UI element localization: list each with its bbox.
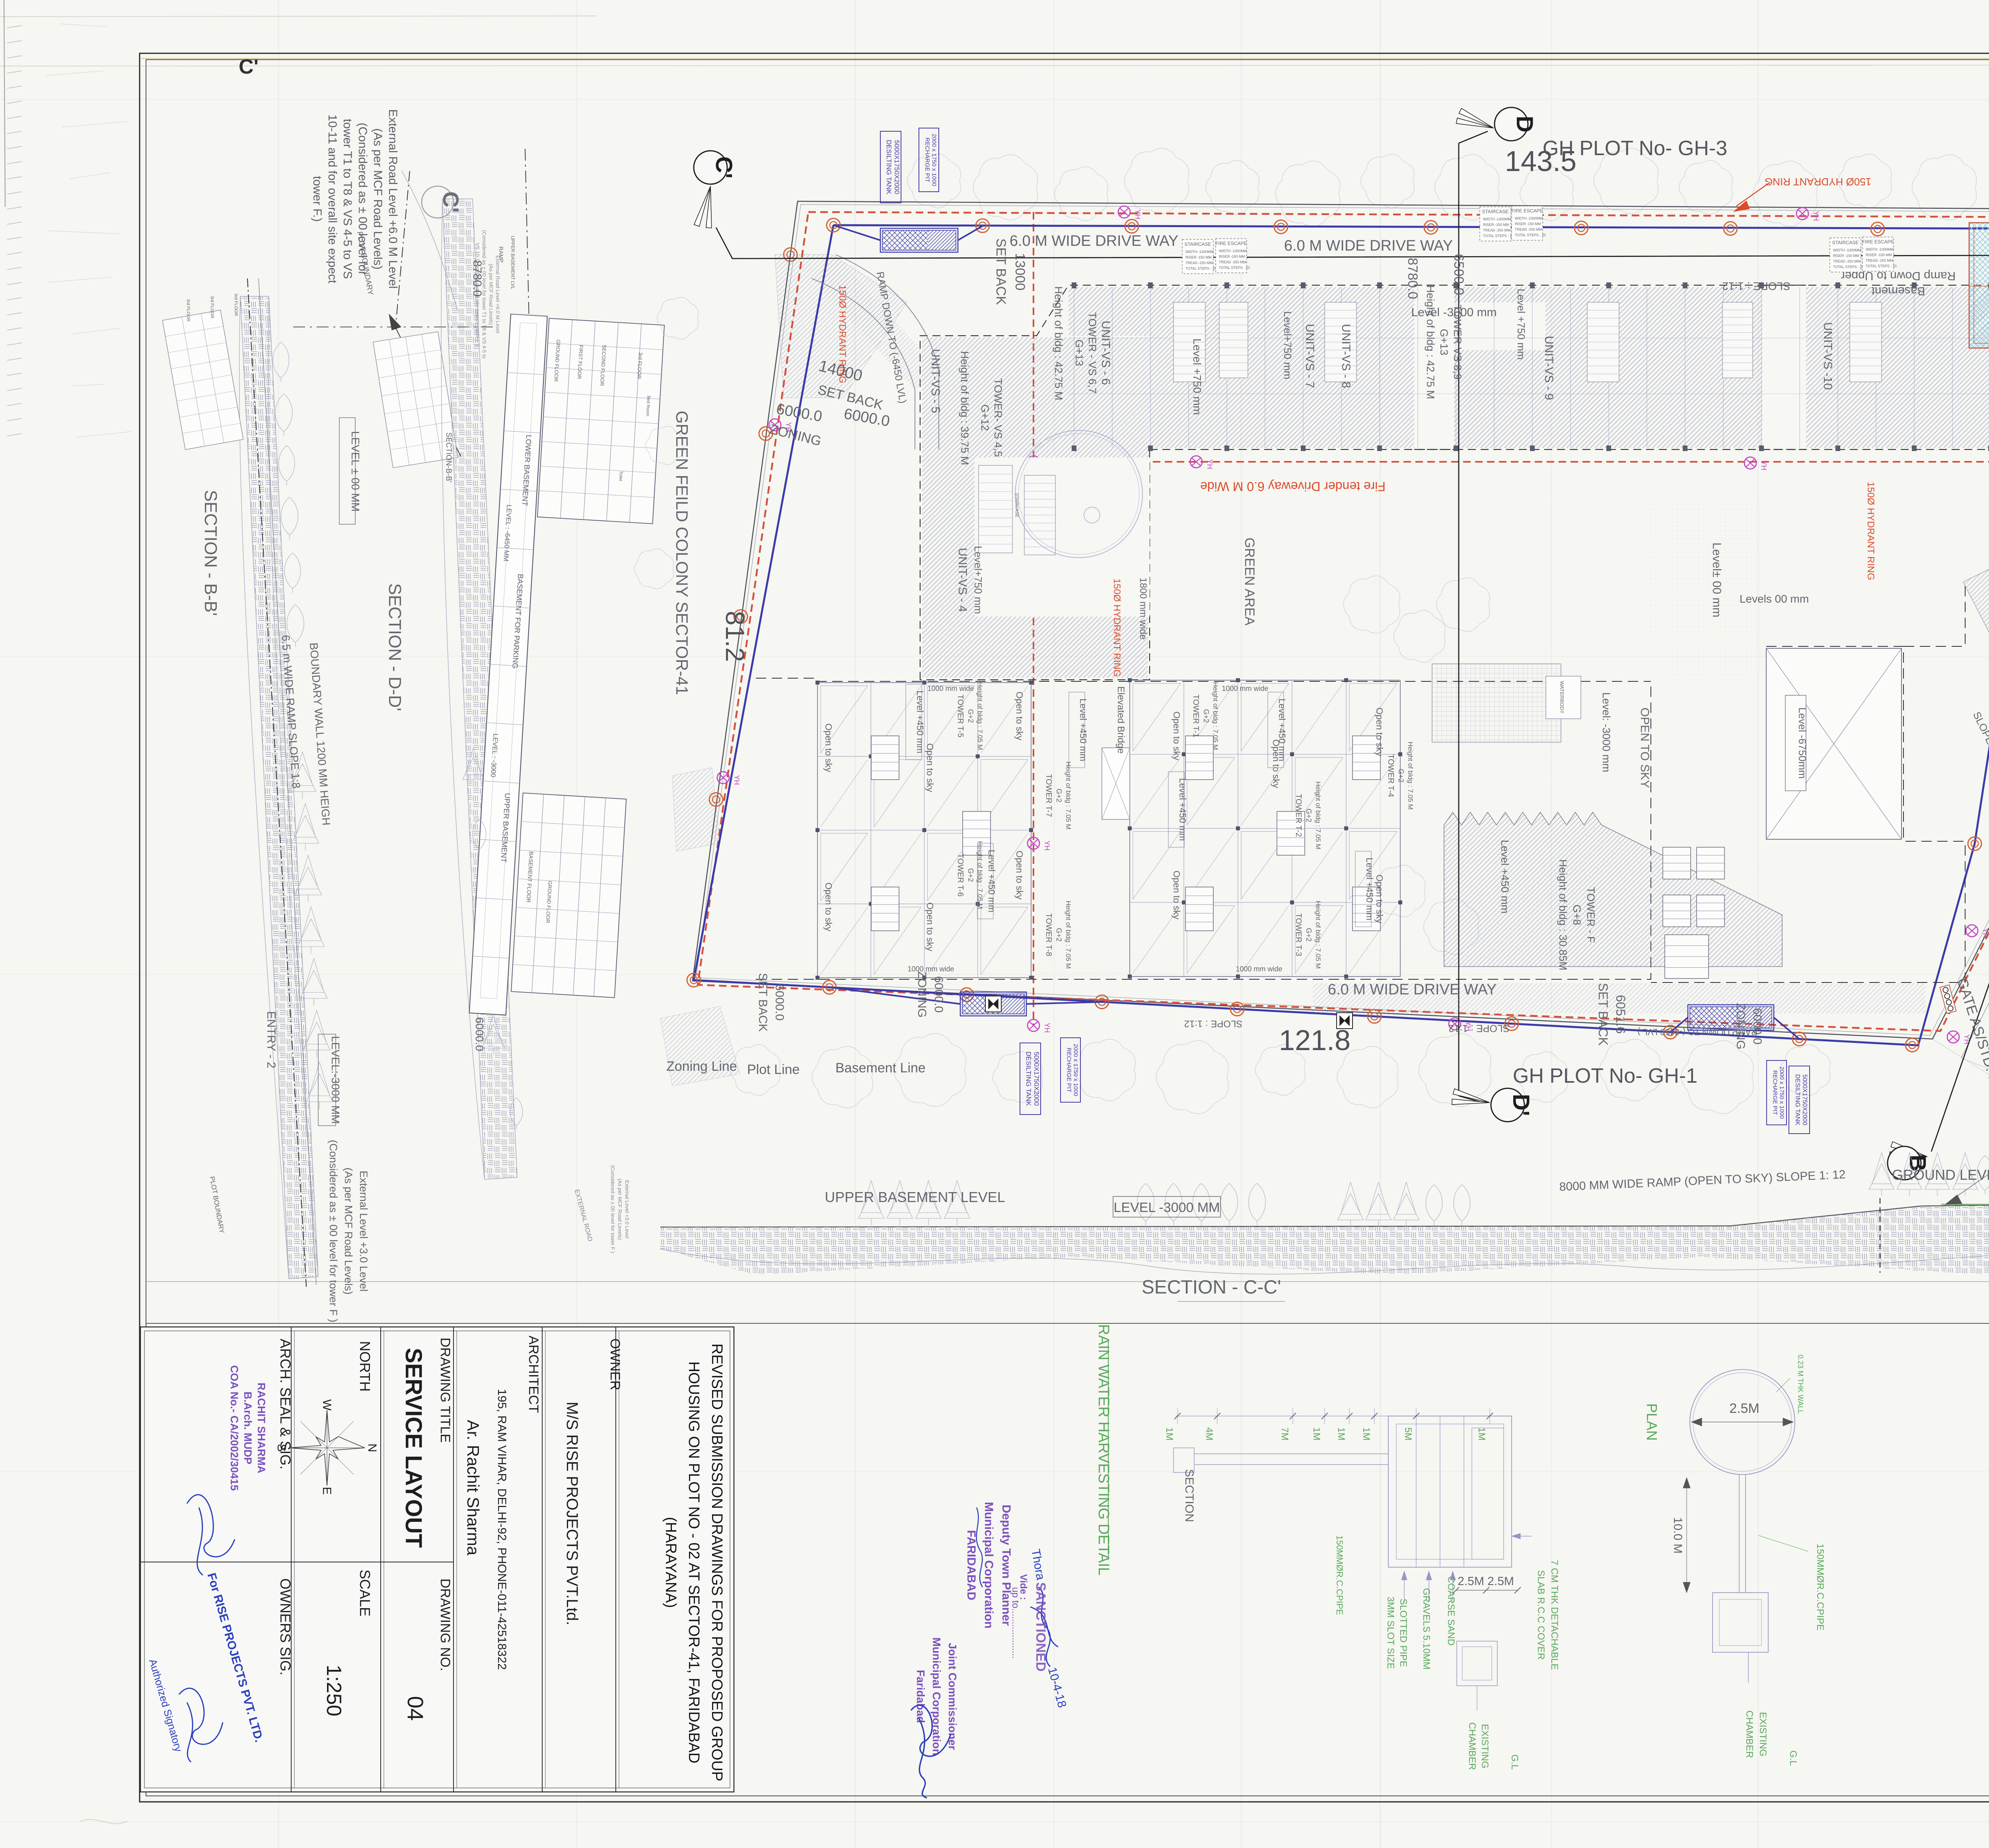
svg-text:Level +450 mm: Level +450 mm <box>1177 778 1188 841</box>
svg-text:RECHARGE PIT: RECHARGE PIT <box>1771 1070 1778 1115</box>
svg-text:2000 x 1750 x 1000: 2000 x 1750 x 1000 <box>931 134 938 186</box>
svg-text:SLOTTED PIPE: SLOTTED PIPE <box>1398 1599 1409 1667</box>
svg-text:G+2: G+2 <box>1305 928 1313 942</box>
svg-text:TOWER T-1: TOWER T-1 <box>1191 694 1200 737</box>
svg-text:SLAB R.C.C COVER: SLAB R.C.C COVER <box>1536 1570 1546 1659</box>
svg-text:Basement: Basement <box>1871 284 1925 298</box>
svg-text:NORTH: NORTH <box>357 1341 373 1391</box>
svg-text:EXISTING: EXISTING <box>1479 1724 1490 1768</box>
svg-text:TOWER T-7: TOWER T-7 <box>1044 774 1053 817</box>
svg-text:FARIDABAD: FARIDABAD <box>965 1530 978 1601</box>
svg-text:SANCTIONED: SANCTIONED <box>1033 1582 1048 1672</box>
svg-text:G+12: G+12 <box>979 405 991 431</box>
svg-text:G+2: G+2 <box>1397 769 1405 783</box>
svg-text:DESILTING TANK: DESILTING TANK <box>885 140 893 195</box>
svg-text:Open to sky: Open to sky <box>1014 851 1025 900</box>
svg-text:RISER -150 MM: RISER -150 MM <box>1515 222 1541 226</box>
svg-text:WATERBODY: WATERBODY <box>1559 681 1565 714</box>
svg-text:TOTAL STEPS - 20: TOTAL STEPS - 20 <box>1219 266 1250 270</box>
svg-text:RISER -150 MM: RISER -150 MM <box>1185 255 1212 259</box>
svg-text:3MM SLOT SIZE: 3MM SLOT SIZE <box>1385 1597 1396 1669</box>
svg-text:UNIT-VS - 5: UNIT-VS - 5 <box>929 349 942 413</box>
svg-text:Level -6750mm: Level -6750mm <box>1796 707 1808 778</box>
svg-text:External Road Level +6.0 M Lev: External Road Level +6.0 M Level <box>386 109 399 288</box>
svg-text:B.Arch. MUDP: B.Arch. MUDP <box>242 1391 254 1464</box>
svg-text:6000.0: 6000.0 <box>932 976 945 1013</box>
svg-text:ENTRY - 2: ENTRY - 2 <box>265 1011 278 1068</box>
svg-text:TOTAL STEPS - 20: TOTAL STEPS - 20 <box>1866 264 1897 268</box>
svg-text:YH: YH <box>1134 209 1142 219</box>
svg-text:TOTAL STEPS - 20: TOTAL STEPS - 20 <box>1515 233 1546 237</box>
svg-text:STAIRCASE: STAIRCASE <box>1014 493 1019 517</box>
svg-text:YH: YH <box>733 775 741 785</box>
svg-text:Levels 00 mm: Levels 00 mm <box>1740 593 1809 605</box>
svg-text:13000: 13000 <box>1012 253 1028 291</box>
svg-text:E: E <box>320 1487 333 1495</box>
svg-text:TOWER T-6: TOWER T-6 <box>956 854 965 897</box>
svg-text:1000 mm wide: 1000 mm wide <box>927 685 974 693</box>
svg-text:TOWER T-5: TOWER T-5 <box>956 694 965 737</box>
svg-text:SECTION - D-D': SECTION - D-D' <box>385 583 405 711</box>
svg-text:GREEN AREA: GREEN AREA <box>1242 537 1257 625</box>
svg-text:Height of bldg : 39.75 M: Height of bldg : 39.75 M <box>959 351 971 465</box>
svg-text:C': C' <box>438 191 463 213</box>
svg-text:TOWER T-3: TOWER T-3 <box>1294 913 1303 956</box>
svg-text:Toilet: Toilet <box>618 471 624 481</box>
svg-text:6000.0: 6000.0 <box>473 1017 486 1051</box>
svg-text:Open to sky: Open to sky <box>1014 692 1025 741</box>
svg-text:Height of bldg : 30.85M: Height of bldg : 30.85M <box>1557 859 1569 970</box>
svg-text:150MMØR.C.CPIPE: 150MMØR.C.CPIPE <box>1335 1535 1345 1615</box>
svg-text:Basement Line: Basement Line <box>835 1060 926 1076</box>
svg-text:Level +450 mm: Level +450 mm <box>1078 698 1088 761</box>
svg-text:GREEN FEILD COLONY SECTOR-41: GREEN FEILD COLONY SECTOR-41 <box>673 411 691 695</box>
svg-text:5000X1750X2000: 5000X1750X2000 <box>893 140 901 194</box>
svg-text:6000.0: 6000.0 <box>773 984 786 1021</box>
svg-text:6500.0: 6500.0 <box>1451 254 1466 295</box>
svg-text:Open to sky: Open to sky <box>823 724 834 772</box>
svg-text:1M: 1M <box>1361 1427 1372 1440</box>
svg-text:STAIRCASE: STAIRCASE <box>1482 209 1508 214</box>
svg-text:2000 x 1750 x 1000: 2000 x 1750 x 1000 <box>1072 1044 1079 1096</box>
svg-text:150Ø HYDRANT RING: 150Ø HYDRANT RING <box>1765 176 1871 188</box>
svg-text:3rd FLOOR: 3rd FLOOR <box>234 294 238 316</box>
svg-text:ARCHITECT: ARCHITECT <box>526 1336 541 1413</box>
svg-text:143.5: 143.5 <box>1505 146 1576 177</box>
svg-text:Elevated Bridge: Elevated Bridge <box>1115 686 1126 753</box>
svg-text:WIDTH -1300MM: WIDTH -1300MM <box>1185 250 1213 254</box>
svg-text:6.0 M WIDE DRIVE WAY: 6.0 M WIDE DRIVE WAY <box>1284 237 1453 254</box>
svg-text:TREAD -250 MM: TREAD -250 MM <box>1866 259 1893 263</box>
svg-text:TREAD -250 MM: TREAD -250 MM <box>1483 228 1510 232</box>
svg-text:REVISED SUBMISSION DRAWINGS FO: REVISED SUBMISSION DRAWINGS FOR PROPOSED… <box>708 1344 725 1782</box>
svg-text:SET BACK: SET BACK <box>993 238 1008 305</box>
svg-text:RISER -150 MM: RISER -150 MM <box>1219 255 1245 259</box>
svg-text:(HARAYANA): (HARAYANA) <box>662 1517 679 1608</box>
svg-text:1M: 1M <box>1476 1427 1487 1440</box>
svg-text:YH: YH <box>1043 1023 1051 1033</box>
svg-text:Ar. Rachit Sharma: Ar. Rachit Sharma <box>464 1420 483 1556</box>
svg-text:0.23 M THK WALL: 0.23 M THK WALL <box>1796 1354 1804 1414</box>
svg-text:RISER -150 MM: RISER -150 MM <box>1866 253 1892 257</box>
svg-text:UPPER BASEMENT LEVEL: UPPER BASEMENT LEVEL <box>825 1189 1005 1205</box>
svg-text:150Ø HYDRANT RING: 150Ø HYDRANT RING <box>1111 578 1122 677</box>
svg-text:5000X1750X2000: 5000X1750X2000 <box>1033 1052 1040 1106</box>
svg-text:G.L: G.L <box>1509 1755 1520 1770</box>
svg-text:WIDTH -1300MM: WIDTH -1300MM <box>1833 248 1861 252</box>
svg-text:N: N <box>366 1443 379 1452</box>
svg-text:2000 x 1750 x 1000: 2000 x 1750 x 1000 <box>1779 1066 1785 1119</box>
svg-text:Zoning Line: Zoning Line <box>666 1059 737 1074</box>
svg-text:SERVICE LAYOUT: SERVICE LAYOUT <box>401 1348 426 1548</box>
svg-text:FIRE ESCAPE: FIRE ESCAPE <box>1215 241 1247 246</box>
svg-text:OPEN TO SKY: OPEN TO SKY <box>1638 708 1651 788</box>
svg-text:OWNER: OWNER <box>607 1338 623 1390</box>
svg-text:UPPER BASEMENT LVL: UPPER BASEMENT LVL <box>510 236 516 290</box>
svg-text:Level +450 mm: Level +450 mm <box>1364 858 1375 920</box>
svg-text:WIDTH -1300MM: WIDTH -1300MM <box>1866 247 1894 251</box>
svg-text:ZONING: ZONING <box>915 971 928 1018</box>
svg-text:RECHARGE PIT: RECHARGE PIT <box>924 138 930 183</box>
svg-text:TOTAL STEPS - 20: TOTAL STEPS - 20 <box>1483 234 1514 238</box>
svg-text:DRAWING NO.: DRAWING NO. <box>438 1579 453 1671</box>
svg-text:Municipal Corporation: Municipal Corporation <box>930 1637 943 1755</box>
svg-text:Height of bldg : 7.05 M: Height of bldg : 7.05 M <box>1065 901 1072 969</box>
svg-text:2.5M 2.5M: 2.5M 2.5M <box>1458 1575 1514 1588</box>
svg-text:tower T1 to T8 & VS 4-5 to VS: tower T1 to T8 & VS 4-5 to VS <box>341 119 354 279</box>
svg-text:TOWER - VS 6,7: TOWER - VS 6,7 <box>1086 312 1098 393</box>
svg-text:DESILTING TANK: DESILTING TANK <box>1794 1074 1801 1126</box>
svg-text:D: D <box>1512 116 1537 132</box>
svg-text:Level: -3000 mm: Level: -3000 mm <box>1600 692 1612 772</box>
svg-text:G+2: G+2 <box>1055 789 1063 803</box>
svg-text:195, RAM VIHAR, DELHI-92, PHON: 195, RAM VIHAR, DELHI-92, PHONE-011-4251… <box>495 1389 508 1670</box>
svg-text:FIRE ESCAPE: FIRE ESCAPE <box>1862 239 1894 245</box>
svg-text:1000 mm wide: 1000 mm wide <box>1222 685 1268 693</box>
svg-text:WIDTH -1300MM: WIDTH -1300MM <box>1219 249 1247 253</box>
svg-text:8780.0: 8780.0 <box>1405 258 1420 299</box>
svg-text:External Level +3.0 Level: External Level +3.0 Level <box>624 1180 630 1238</box>
svg-text:CHAMBER: CHAMBER <box>1744 1710 1755 1758</box>
svg-text:G+2: G+2 <box>1055 928 1063 942</box>
svg-text:121.8: 121.8 <box>1279 1025 1351 1056</box>
svg-text:HOUSING ON PLOT NO - 02 AT SE: HOUSING ON PLOT NO - 02 AT SECTOR-41, FA… <box>685 1362 702 1764</box>
svg-text:Level +450 mm: Level +450 mm <box>1499 840 1511 913</box>
svg-text:TREAD -250 MM: TREAD -250 MM <box>1185 261 1213 265</box>
svg-text:Height of bldg : 7.05 M: Height of bldg : 7.05 M <box>1314 901 1322 969</box>
svg-text:(As per MCF Road Levels): (As per MCF Road Levels) <box>343 1167 354 1295</box>
svg-text:1000 mm wide: 1000 mm wide <box>907 965 954 973</box>
svg-text:1M: 1M <box>1164 1427 1175 1440</box>
svg-text:UNIT-VS -10: UNIT-VS -10 <box>1821 322 1834 390</box>
svg-text:COARSE SAND: COARSE SAND <box>1446 1576 1456 1646</box>
svg-text:Plot Line: Plot Line <box>747 1062 800 1077</box>
svg-text:1000 mm wide: 1000 mm wide <box>1236 965 1282 973</box>
svg-text:D': D' <box>1508 1094 1534 1116</box>
svg-text:YH: YH <box>1760 460 1768 470</box>
svg-text:3rd FLOOR: 3rd FLOOR <box>186 299 191 322</box>
svg-text:External Road Level +6.0 M Lev: External Road Level +6.0 M Level <box>495 255 501 333</box>
svg-text:TOTAL STEPS - 20: TOTAL STEPS - 20 <box>1185 267 1216 270</box>
svg-text:Level +450 mm: Level +450 mm <box>987 850 997 912</box>
svg-text:TOWER T-2: TOWER T-2 <box>1294 794 1303 837</box>
svg-text:Open to sky: Open to sky <box>1172 871 1182 920</box>
svg-text:Level± 00 mm: Level± 00 mm <box>1710 543 1723 617</box>
svg-text:LEVEL ± 00 MM: LEVEL ± 00 MM <box>349 431 362 512</box>
svg-text:CHAMBER: CHAMBER <box>1467 1722 1477 1770</box>
svg-text:UNIT-VS - 4: UNIT-VS - 4 <box>956 548 969 612</box>
svg-text:RAMP DOWN TO (-6450 LVL.): RAMP DOWN TO (-6450 LVL.) <box>1637 1027 1757 1037</box>
svg-text:Joint Commissioner: Joint Commissioner <box>946 1643 959 1750</box>
svg-text:FIRE ESCAPE: FIRE ESCAPE <box>1511 208 1543 214</box>
svg-text:1M: 1M <box>1336 1427 1347 1440</box>
svg-text:(Considered as ± 00 level for: (Considered as ± 00 level for tower F ) <box>610 1165 616 1253</box>
svg-text:SLOPE : 1:12: SLOPE : 1:12 <box>1722 280 1790 292</box>
svg-text:Height of bldg : 42.75 M: Height of bldg : 42.75 M <box>1425 285 1436 399</box>
svg-text:UNIT-VS - 6: UNIT-VS - 6 <box>1099 321 1112 385</box>
svg-text:Level+750 mm: Level+750 mm <box>972 546 984 614</box>
svg-text:tower F.): tower F.) <box>311 176 324 222</box>
svg-text:COA No.- CA/2002/30415: COA No.- CA/2002/30415 <box>228 1365 240 1491</box>
svg-text:Vide :: Vide : <box>1018 1574 1029 1600</box>
svg-text:Level +750 mm: Level +750 mm <box>1515 289 1527 360</box>
svg-text:SECTION - C-C': SECTION - C-C' <box>1142 1277 1281 1298</box>
svg-text:150Ø HYDRANT RING: 150Ø HYDRANT RING <box>1865 482 1876 580</box>
svg-text:YH: YH <box>1812 211 1820 221</box>
svg-text:TREAD -250 MM: TREAD -250 MM <box>1219 260 1246 264</box>
svg-text:TOWER- VS 4,5: TOWER- VS 4,5 <box>992 378 1004 457</box>
svg-text:WIDTH -1300MM: WIDTH -1300MM <box>1515 216 1543 220</box>
svg-text:GRAVELS 5.10MM: GRAVELS 5.10MM <box>1421 1588 1432 1670</box>
svg-text:7 CM THK DETACHABLE: 7 CM THK DETACHABLE <box>1549 1560 1560 1670</box>
svg-text:GH PLOT No- GH-1: GH PLOT No- GH-1 <box>1513 1064 1697 1087</box>
svg-text:SECTION: SECTION <box>1183 1469 1196 1522</box>
svg-text:Height of bldg : 7.05 M: Height of bldg : 7.05 M <box>976 682 984 750</box>
svg-text:Open to sky: Open to sky <box>1374 875 1385 924</box>
svg-text:STAIRCASE: STAIRCASE <box>1832 240 1859 245</box>
svg-text:7M: 7M <box>1279 1427 1290 1440</box>
svg-text:SCALE: SCALE <box>357 1570 373 1617</box>
svg-text:W: W <box>320 1399 333 1411</box>
svg-text:DESILTING TANK: DESILTING TANK <box>1025 1052 1032 1107</box>
svg-text:Open to sky: Open to sky <box>925 903 935 951</box>
svg-text:G+2: G+2 <box>1202 709 1210 723</box>
svg-text:RECHARGE PIT: RECHARGE PIT <box>1065 1048 1072 1093</box>
svg-text:SECTION-B-B': SECTION-B-B' <box>444 432 453 482</box>
svg-text:RACHIT SHARMA: RACHIT SHARMA <box>255 1383 267 1473</box>
svg-text:DRAWING TITLE: DRAWING TITLE <box>438 1338 453 1443</box>
svg-text:G+8: G+8 <box>1571 905 1583 925</box>
svg-text:External Level +3.0 Level: External Level +3.0 Level <box>358 1171 370 1292</box>
svg-text:SLOPE : 1:12: SLOPE : 1:12 <box>1184 1018 1243 1029</box>
svg-text:Level +450 mm: Level +450 mm <box>915 691 925 753</box>
svg-text:PLAN: PLAN <box>1644 1403 1660 1441</box>
svg-text:G+13: G+13 <box>1073 340 1085 366</box>
svg-text:Level +750 mm: Level +750 mm <box>1191 338 1203 415</box>
svg-text:G.L: G.L <box>1788 1751 1798 1766</box>
svg-text:Open to sky: Open to sky <box>1172 712 1182 761</box>
svg-text:Height of bldg : 7.05 M: Height of bldg : 7.05 M <box>1407 741 1414 809</box>
svg-text:G+13: G+13 <box>1438 329 1450 356</box>
svg-text:C': C' <box>711 156 737 179</box>
svg-text:S: S <box>275 1444 288 1452</box>
svg-text:SLOPE : 1:12: SLOPE : 1:12 <box>1449 1023 1510 1034</box>
svg-text:TOWER T-8: TOWER T-8 <box>1044 913 1053 956</box>
svg-text:TOTAL STEPS - 20: TOTAL STEPS - 20 <box>1833 265 1864 269</box>
svg-text:5M: 5M <box>1403 1427 1413 1440</box>
svg-text:G+2: G+2 <box>967 709 975 723</box>
svg-text:YH: YH <box>1981 928 1989 938</box>
svg-text:(As per MCF Road Levels): (As per MCF Road Levels) <box>617 1179 623 1240</box>
svg-text:Height of bldg : 7.05 M: Height of bldg : 7.05 M <box>976 841 984 909</box>
svg-text:LEVEL:-3000 MM: LEVEL:-3000 MM <box>329 1036 342 1124</box>
svg-text:RISER -150 MM: RISER -150 MM <box>1483 223 1509 227</box>
svg-text:Height of bldg : 7.05 M: Height of bldg : 7.05 M <box>1212 682 1219 750</box>
svg-text:8780.0: 8780.0 <box>471 260 484 297</box>
svg-text:(As per MCF Road Levels): (As per MCF Road Levels) <box>488 264 494 325</box>
svg-text:(Considered as ± 00 level for: (Considered as ± 00 level for tower F ) <box>327 1140 339 1323</box>
svg-text:YH: YH <box>1043 840 1051 850</box>
svg-text:81.2: 81.2 <box>720 611 750 662</box>
svg-text:Municipal Corporation: Municipal Corporation <box>982 1502 995 1628</box>
svg-text:STAIRCASE: STAIRCASE <box>1184 241 1211 247</box>
svg-text:EXISTING: EXISTING <box>1757 1712 1768 1757</box>
svg-text:04: 04 <box>403 1696 428 1721</box>
svg-text:Fire tender Driveway 6.0 M Wid: Fire tender Driveway 6.0 M Wide <box>1200 479 1386 494</box>
svg-text:Level +450 mm: Level +450 mm <box>1277 698 1287 761</box>
svg-text:10.0 M: 10.0 M <box>1671 1517 1684 1554</box>
svg-text:Open to sky: Open to sky <box>823 883 834 932</box>
svg-text:10-11 and for overall site ex: 10-11 and for overall site expect <box>326 115 339 284</box>
svg-text:TOWER T-4: TOWER T-4 <box>1386 754 1395 797</box>
svg-text:C': C' <box>239 55 259 78</box>
svg-text:(Considered as ± 00 level for: (Considered as ± 00 level for <box>356 123 369 275</box>
svg-text:1:250: 1:250 <box>322 1665 345 1716</box>
svg-text:(As per MCF Road Levels): (As per MCF Road Levels) <box>371 128 384 269</box>
svg-text:UNIT-VS - 8: UNIT-VS - 8 <box>1339 324 1353 388</box>
svg-text:TOWER - F: TOWER - F <box>1585 887 1597 943</box>
svg-text:Open to sky: Open to sky <box>1374 708 1385 757</box>
svg-text:TREAD -250 MM: TREAD -250 MM <box>1833 259 1861 263</box>
svg-text:150MMØR.C.CPIPE: 150MMØR.C.CPIPE <box>1815 1544 1826 1631</box>
svg-text:SECTION - B-B': SECTION - B-B' <box>201 490 220 616</box>
svg-text:2.5M: 2.5M <box>1729 1401 1759 1416</box>
svg-text:WIDTH -1300MM: WIDTH -1300MM <box>1483 217 1511 221</box>
svg-text:Open to sky: Open to sky <box>925 743 935 792</box>
svg-text:SET BACK: SET BACK <box>756 973 769 1032</box>
svg-text:M/S RISE PROJECTS PVT.Ltd.: M/S RISE PROJECTS PVT.Ltd. <box>563 1402 581 1625</box>
svg-text:UNIT-VS - 9: UNIT-VS - 9 <box>1542 336 1555 400</box>
svg-text:Level+750 mm: Level+750 mm <box>1282 311 1294 379</box>
svg-text:RISER -150 MM: RISER -150 MM <box>1833 254 1859 258</box>
svg-text:Faridabad: Faridabad <box>915 1670 927 1723</box>
svg-text:UNIT-VS - 7: UNIT-VS - 7 <box>1303 324 1316 388</box>
svg-text:GROUND LEVEL: GROUND LEVEL <box>1892 1167 1989 1183</box>
svg-text:OWNERS SIG.: OWNERS SIG. <box>277 1578 294 1675</box>
svg-text:RAIN WATER HARVESTING DETAIL: RAIN WATER HARVESTING DETAIL <box>1095 1324 1112 1576</box>
svg-text:Height of bldg : 7.05 M: Height of bldg : 7.05 M <box>1314 781 1322 849</box>
svg-text:TREAD -250 MM: TREAD -250 MM <box>1515 228 1542 231</box>
svg-text:LEVEL -3000 MM: LEVEL -3000 MM <box>1113 1200 1220 1215</box>
svg-text:6.0 M WIDE DRIVE WAY: 6.0 M WIDE DRIVE WAY <box>1010 233 1178 249</box>
svg-text:RAMP: RAMP <box>498 247 504 263</box>
svg-text:Level -3000 mm: Level -3000 mm <box>1411 306 1497 319</box>
svg-text:3rd FLOOR: 3rd FLOOR <box>210 296 214 319</box>
svg-text:Height of bldg : 7.05 M: Height of bldg : 7.05 M <box>1065 761 1072 829</box>
svg-text:G+2: G+2 <box>1305 809 1313 823</box>
svg-text:G+2: G+2 <box>967 868 975 882</box>
svg-text:1M: 1M <box>1311 1427 1322 1440</box>
svg-text:4M: 4M <box>1204 1427 1214 1440</box>
svg-text:Height of bldg : 42.75 M: Height of bldg : 42.75 M <box>1053 286 1065 401</box>
svg-text:5000X1750X2000: 5000X1750X2000 <box>1801 1074 1808 1125</box>
